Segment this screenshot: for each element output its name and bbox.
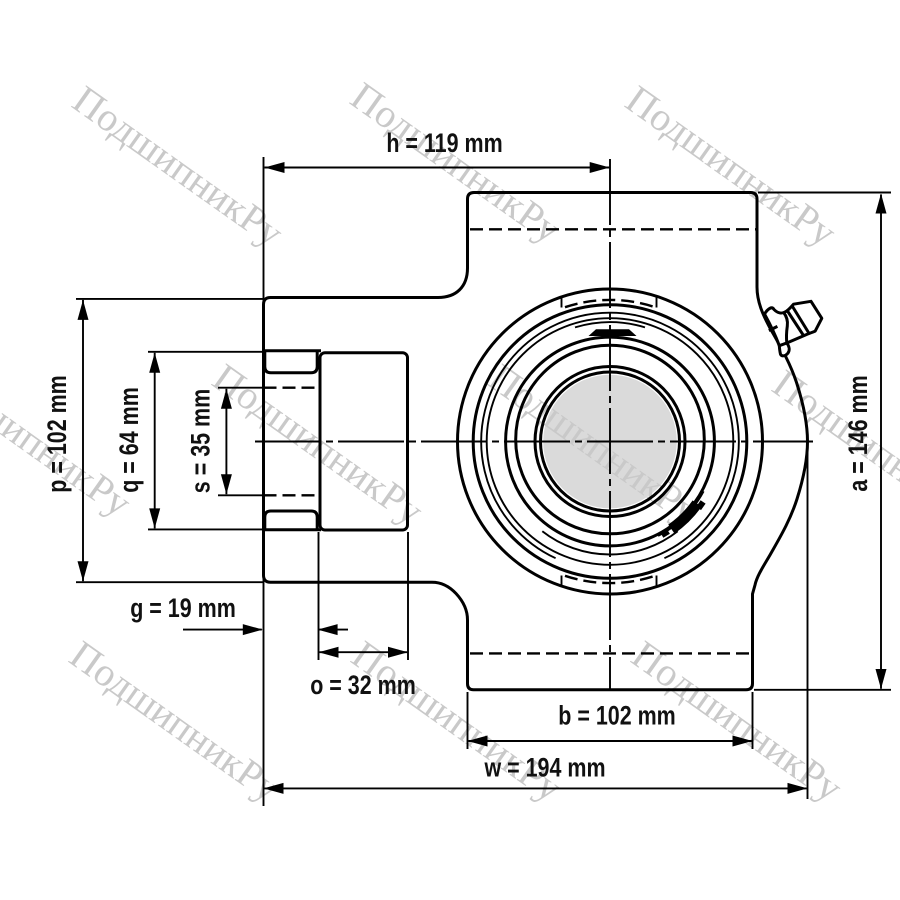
svg-text:q = 64 mm: q = 64 mm: [115, 387, 145, 493]
svg-text:a = 146 mm: a = 146 mm: [844, 375, 874, 491]
svg-text:w = 194 mm: w = 194 mm: [484, 753, 606, 783]
svg-text:s = 35 mm: s = 35 mm: [186, 389, 216, 493]
svg-text:h = 119 mm: h = 119 mm: [386, 129, 502, 159]
svg-text:p = 102 mm: p = 102 mm: [43, 375, 73, 493]
svg-text:o = 32 mm: o = 32 mm: [310, 671, 416, 701]
svg-text:g = 19 mm: g = 19 mm: [130, 594, 236, 624]
svg-text:b = 102 mm: b = 102 mm: [558, 701, 676, 731]
